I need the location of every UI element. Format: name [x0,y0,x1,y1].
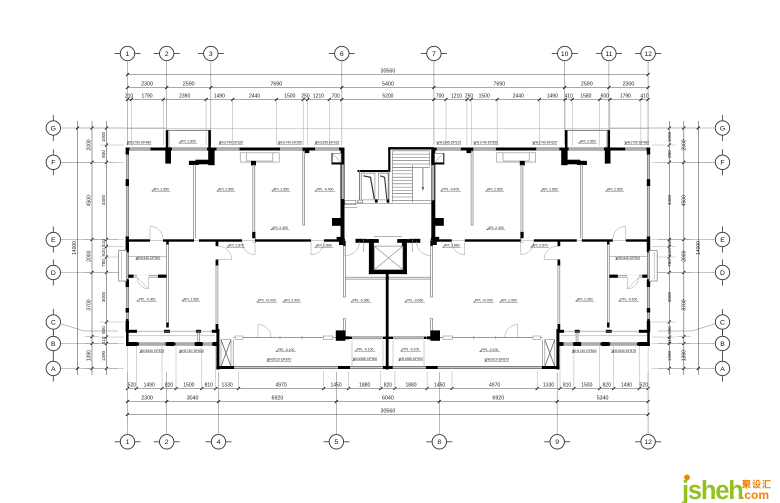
svg-text:PPL +0.000: PPL +0.000 [475,299,493,303]
svg-text:PPL -0.050: PPL -0.050 [353,298,370,302]
svg-text:250: 250 [465,94,474,100]
svg-text:APL 2.850: APL 2.850 [580,140,596,144]
svg-text:1790: 1790 [141,94,152,100]
svg-text:1490: 1490 [214,94,225,100]
svg-text:PPL -0.400: PPL -0.400 [442,188,459,192]
svg-text:PPL -0.100: PPL -0.100 [402,348,419,352]
svg-text:C: C [51,319,56,326]
svg-text:APL 2.850: APL 2.850 [273,188,289,192]
svg-text:4300: 4300 [667,194,672,205]
svg-text:APL 2.850: APL 2.850 [487,188,503,192]
svg-text:WH1345·DF915: WH1345·DF915 [315,141,340,145]
svg-text:800: 800 [101,150,106,158]
svg-text:PPL -0.100: PPL -0.100 [357,348,374,352]
svg-text:4500: 4500 [681,195,687,206]
svg-text:1580: 1580 [580,94,591,100]
svg-text:PPL -0.300: PPL -0.300 [139,298,156,302]
svg-text:2300: 2300 [141,395,153,401]
svg-text:WH2440·DF900: WH2440·DF900 [136,256,161,260]
svg-text:1: 1 [126,439,130,446]
svg-text:2590: 2590 [581,82,593,88]
svg-text:APL 2.950: APL 2.950 [183,298,199,302]
svg-text:1390: 1390 [681,350,687,361]
svg-text:9: 9 [555,439,559,446]
svg-text:APL 2.880: APL 2.880 [444,244,460,248]
svg-text:1880: 1880 [405,382,416,388]
svg-text:WH1985·DF900: WH1985·DF900 [399,357,424,361]
svg-text:E: E [51,237,56,244]
svg-text:WH1790·DF480: WH1790·DF480 [625,141,650,145]
svg-text:B: B [51,341,56,348]
svg-text:2300: 2300 [141,82,153,88]
svg-text:C: C [720,319,725,326]
svg-text:1330: 1330 [543,382,554,388]
svg-text:PPL -0.400: PPL -0.400 [317,188,334,192]
svg-text:2440: 2440 [249,94,260,100]
svg-text:WH1540·DF875: WH1540·DF875 [140,349,165,353]
svg-text:11: 11 [605,51,612,58]
svg-text:780: 780 [101,259,106,267]
svg-text:PPL -0.100: PPL -0.100 [278,348,295,352]
svg-text:3700: 3700 [87,299,93,310]
svg-text:D: D [51,270,56,277]
svg-text:A: A [51,366,56,373]
svg-text:jsheh: jsheh [681,477,743,503]
svg-text:WH1740·DF590: WH1740·DF590 [278,141,303,145]
svg-text:520: 520 [128,382,137,388]
svg-text:3000: 3000 [667,291,672,302]
svg-text:D: D [720,270,725,277]
svg-text:4300: 4300 [101,194,106,205]
svg-text:6920: 6920 [272,395,284,401]
svg-text:APL 2.850: APL 2.850 [180,140,196,144]
svg-text:800: 800 [101,326,106,334]
svg-text:8: 8 [437,439,441,446]
svg-text:7690: 7690 [270,82,282,88]
svg-text:G: G [720,125,725,132]
svg-text:APL 2.850: APL 2.850 [542,188,558,192]
svg-text:3000: 3000 [101,291,106,302]
svg-text:APL 2.850: APL 2.850 [153,188,169,192]
svg-text:WH1740·DF600: WH1740·DF600 [179,349,204,353]
svg-text:410: 410 [667,239,672,247]
svg-text:APL 2.870: APL 2.870 [228,244,244,248]
svg-text:810: 810 [205,382,214,388]
svg-text:WH1540·DF875: WH1540·DF875 [612,349,637,353]
svg-text:1000: 1000 [101,131,106,142]
svg-text:4500: 4500 [87,195,93,206]
svg-text:1500: 1500 [284,94,295,100]
svg-text:PPL -0.300: PPL -0.300 [620,298,637,302]
svg-text:WH1985·DF900: WH1985·DF900 [353,357,378,361]
svg-text:1210: 1210 [451,94,462,100]
svg-text:4: 4 [217,439,221,446]
svg-text:810: 810 [563,382,572,388]
svg-text:F: F [51,160,55,167]
svg-text:WH1740·DF590: WH1740·DF590 [474,141,499,145]
svg-text:7: 7 [432,51,436,58]
svg-text:700: 700 [436,94,445,100]
svg-text:410: 410 [640,94,649,100]
svg-text:2000: 2000 [87,250,93,261]
svg-text:B: B [720,341,725,348]
svg-text:1000: 1000 [667,131,672,142]
svg-text:1490: 1490 [621,382,632,388]
svg-text:4970: 4970 [489,382,500,388]
svg-text:WH2010·DF870: WH2010·DF870 [485,358,510,362]
svg-text:410: 410 [101,239,106,247]
svg-text:30560: 30560 [381,408,396,414]
svg-text:APL 2.400: APL 2.400 [272,226,288,230]
svg-text:2000: 2000 [681,250,687,261]
svg-text:1500: 1500 [479,94,490,100]
svg-text:12: 12 [644,51,652,58]
svg-text:14000: 14000 [696,241,702,255]
svg-text:APL 2.880: APL 2.880 [316,244,332,248]
svg-text:820: 820 [384,382,393,388]
svg-text:6920: 6920 [492,395,504,401]
svg-text:14000: 14000 [72,241,78,255]
svg-text:WH1740·DF620: WH1740·DF620 [533,141,558,145]
svg-text:.com: .com [741,488,769,502]
svg-text:1790: 1790 [620,94,631,100]
svg-text:PPL -0.100: PPL -0.100 [481,348,498,352]
svg-text:1210: 1210 [313,94,324,100]
svg-text:1450: 1450 [331,382,342,388]
svg-text:APL 2.870: APL 2.870 [532,244,548,248]
svg-text:7690: 7690 [493,82,505,88]
svg-text:3040: 3040 [187,395,199,401]
svg-text:1330: 1330 [222,382,233,388]
svg-text:PPL +0.000: PPL +0.000 [258,299,276,303]
svg-text:6040: 6040 [382,395,394,401]
svg-text:3700: 3700 [681,299,687,310]
svg-text:E: E [720,237,725,244]
svg-text:800: 800 [667,326,672,334]
svg-text:WH1790·DF480: WH1790·DF480 [127,141,152,145]
svg-text:4970: 4970 [276,382,287,388]
svg-text:700: 700 [331,94,340,100]
svg-text:1390: 1390 [667,350,672,361]
svg-text:210: 210 [125,94,134,100]
svg-text:2300: 2300 [623,82,635,88]
svg-text:5: 5 [335,439,339,446]
svg-text:APL 2.900: APL 2.900 [501,299,517,303]
svg-text:A: A [720,366,725,373]
svg-text:2000: 2000 [681,139,687,150]
svg-text:APL 2.850: APL 2.850 [607,188,623,192]
svg-text:APL 2.900: APL 2.900 [284,299,300,303]
svg-text:10: 10 [561,51,569,58]
svg-text:780: 780 [667,259,672,267]
svg-text:1: 1 [126,51,130,58]
svg-text:WH2440·DF900: WH2440·DF900 [616,256,641,260]
svg-text:3: 3 [209,51,213,58]
svg-text:F: F [720,160,724,167]
svg-text:1500: 1500 [183,382,194,388]
svg-text:5200: 5200 [382,94,393,100]
svg-text:12: 12 [644,439,652,446]
svg-text:1390: 1390 [87,350,93,361]
svg-text:2: 2 [165,51,169,58]
svg-text:620: 620 [101,248,106,256]
svg-text:410: 410 [565,94,574,100]
svg-text:WH1740·DF620: WH1740·DF620 [219,141,244,145]
svg-text:WH1345·DF915: WH1345·DF915 [437,141,462,145]
svg-text:410: 410 [101,336,106,344]
svg-text:30560: 30560 [381,69,396,75]
svg-text:APL 2.950: APL 2.950 [577,298,593,302]
svg-text:1500: 1500 [581,382,592,388]
svg-text:PPL -0.050: PPL -0.050 [406,298,423,302]
svg-text:5340: 5340 [597,395,609,401]
svg-text:820: 820 [165,382,174,388]
svg-text:620: 620 [667,248,672,256]
svg-text:APL 2.400: APL 2.400 [488,226,504,230]
svg-text:WH2010·DF870: WH2010·DF870 [267,358,292,362]
svg-text:820: 820 [603,382,612,388]
svg-text:1490: 1490 [547,94,558,100]
svg-text:APL 2.850: APL 2.850 [218,188,234,192]
svg-text:G: G [51,125,56,132]
svg-text:2390: 2390 [179,94,190,100]
svg-text:1390: 1390 [101,350,106,361]
svg-text:6: 6 [340,51,344,58]
svg-text:5400: 5400 [382,82,394,88]
svg-text:2440: 2440 [513,94,524,100]
svg-text:1880: 1880 [359,382,370,388]
svg-text:WH1740·DF600: WH1740·DF600 [572,349,597,353]
svg-text:600: 600 [601,94,610,100]
svg-text:520: 520 [640,382,649,388]
svg-text:2: 2 [165,439,169,446]
svg-text:2000: 2000 [87,139,93,150]
svg-text:250: 250 [301,94,310,100]
svg-text:1490: 1490 [144,382,155,388]
svg-text:2590: 2590 [183,82,195,88]
svg-text:1450: 1450 [434,382,445,388]
svg-text:800: 800 [667,150,672,158]
svg-text:410: 410 [667,336,672,344]
